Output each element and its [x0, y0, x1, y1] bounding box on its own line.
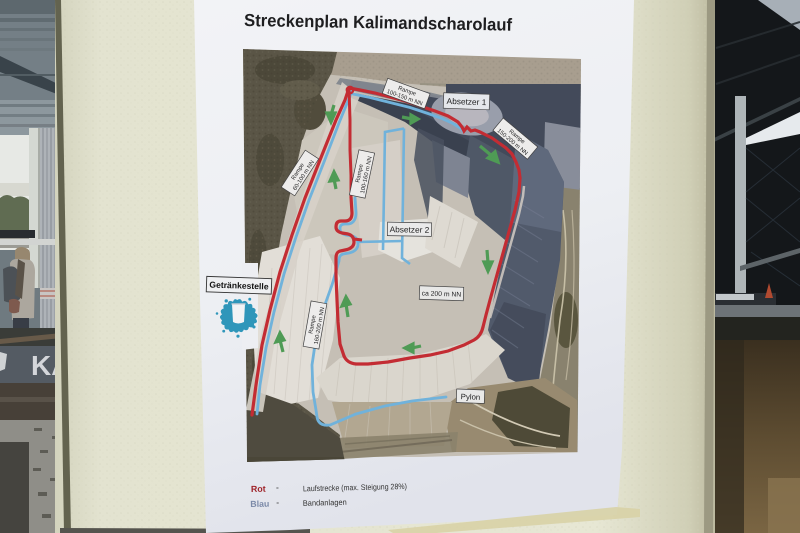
svg-text:Getränkestelle: Getränkestelle [209, 279, 269, 291]
svg-text:Bandanlagen: Bandanlagen [303, 498, 347, 508]
svg-text:-: - [276, 497, 279, 507]
svg-text:Rot: Rot [251, 484, 266, 494]
svg-text:-: - [276, 482, 279, 492]
svg-text:Blau: Blau [250, 499, 269, 509]
